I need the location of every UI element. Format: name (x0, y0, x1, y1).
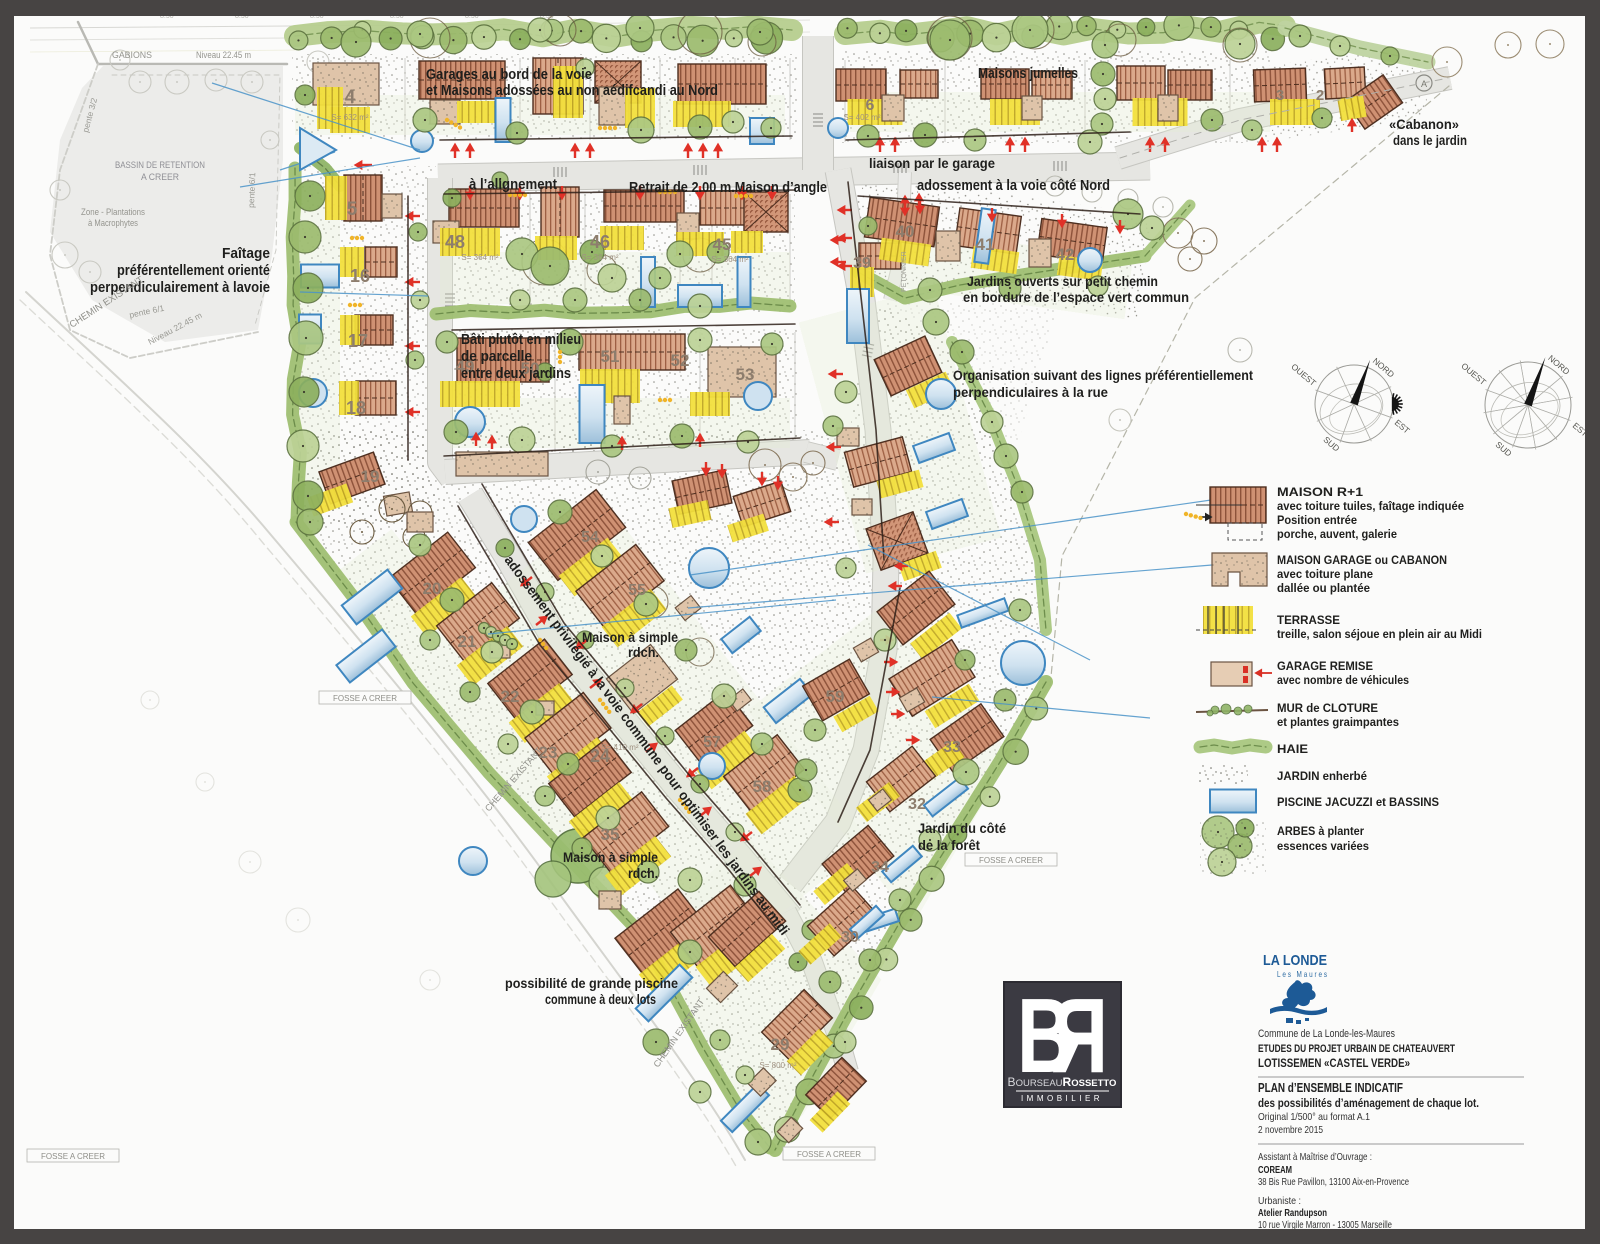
svg-text:adossement à la voie côté Nord: adossement à la voie côté Nord (917, 178, 1110, 194)
svg-text:S= 364 m²: S= 364 m² (711, 255, 748, 264)
svg-text:PETONNIER: PETONNIER (901, 251, 908, 292)
svg-text:dallée ou plantée: dallée ou plantée (1277, 581, 1370, 595)
svg-text:porche, auvent, galerie: porche, auvent, galerie (1277, 527, 1397, 541)
svg-text:MAISON R+1: MAISON R+1 (1277, 485, 1363, 499)
svg-text:et plantes graimpantes: et plantes graimpantes (1277, 715, 1399, 729)
svg-text:à l’alignement: à l’alignement (469, 177, 557, 193)
svg-text:de parcelle: de parcelle (461, 349, 532, 365)
svg-text:Maisons jumelles: Maisons jumelles (978, 66, 1078, 82)
svg-text:S= 800 m²: S= 800 m² (759, 1061, 796, 1070)
svg-text:Commune de La Londe-les-Maure: Commune de La Londe-les-Maures (1258, 1028, 1395, 1040)
svg-text:S= 364 m²: S= 364 m² (581, 253, 618, 262)
svg-text:6: 6 (866, 97, 875, 114)
svg-text:avec toiture tuiles, faîtage i: avec toiture tuiles, faîtage indiquée (1277, 499, 1464, 513)
svg-text:Atelier Randupson: Atelier Randupson (1258, 1207, 1327, 1219)
svg-text:liaison par le garage: liaison par le garage (869, 155, 995, 171)
svg-text:52: 52 (671, 351, 690, 370)
svg-text:COREAM: COREAM (1258, 1164, 1292, 1176)
svg-text:18: 18 (346, 398, 366, 418)
svg-text:Maison à simple: Maison à simple (582, 630, 678, 645)
svg-text:34: 34 (871, 859, 889, 876)
svg-text:21: 21 (458, 632, 477, 651)
svg-text:en bordure de l’espace vert co: en bordure de l’espace vert commun (963, 289, 1189, 305)
svg-text:A CREER: A CREER (141, 172, 179, 183)
svg-text:essences variées: essences variées (1277, 839, 1369, 853)
svg-text:Urbaniste :: Urbaniste : (1258, 1195, 1301, 1207)
svg-text:FOSSE A CREER: FOSSE A CREER (797, 1150, 861, 1159)
svg-text:Retrait de 2.00 m.Maison d’ang: Retrait de 2.00 m.Maison d’angle (629, 180, 827, 196)
svg-text:avec nombre de véhicules: avec nombre de véhicules (1277, 673, 1409, 687)
svg-text:rdch.: rdch. (628, 645, 659, 660)
svg-text:Niveau 22.45 m: Niveau 22.45 m (196, 50, 251, 60)
svg-text:53: 53 (736, 365, 755, 384)
svg-text:Original 1/500° au format A.1: Original 1/500° au format A.1 (1258, 1111, 1370, 1123)
svg-text:35: 35 (601, 825, 620, 844)
svg-text:19: 19 (361, 467, 380, 486)
svg-text:des possibilités d’aménagement: des possibilités d’aménagement de chaque… (1258, 1096, 1479, 1110)
svg-text:59: 59 (826, 687, 845, 706)
svg-text:5: 5 (347, 199, 358, 220)
svg-text:entre deux jardins: entre deux jardins (461, 366, 571, 382)
svg-text:S= 410 m²: S= 410 m² (601, 743, 638, 752)
svg-text:33: 33 (943, 739, 961, 756)
svg-text:treille, salon séjoue en plein: treille, salon séjoue en plein air au Mi… (1277, 627, 1482, 641)
svg-text:Jardins ouverts sur petit chem: Jardins ouverts sur petit chemin (967, 273, 1158, 289)
svg-text:41: 41 (976, 235, 995, 254)
svg-text:22: 22 (501, 687, 520, 706)
svg-text:45: 45 (713, 235, 732, 254)
svg-text:IMMOBILIER: IMMOBILIER (1021, 1094, 1103, 1103)
svg-text:54: 54 (581, 529, 599, 546)
svg-text:Les Maures: Les Maures (1277, 969, 1329, 979)
svg-text:rdch.: rdch. (628, 866, 658, 881)
svg-text:48: 48 (445, 232, 465, 252)
svg-text:Maison à simple: Maison à simple (563, 850, 658, 865)
svg-text:42: 42 (1056, 245, 1075, 264)
svg-text:GABIONS: GABIONS (112, 50, 152, 60)
svg-text:LA LONDE: LA LONDE (1263, 952, 1327, 969)
svg-text:commune à deux lots: commune à deux lots (545, 991, 656, 1007)
svg-text:39: 39 (853, 255, 871, 272)
svg-text:Zone - Plantations: Zone - Plantations (81, 207, 145, 217)
svg-text:Bâti plutôt en milieu: Bâti plutôt en milieu (461, 332, 581, 348)
svg-text:R: R (1051, 977, 1108, 1095)
svg-text:dans le jardin: dans le jardin (1393, 133, 1467, 148)
svg-text:46: 46 (590, 232, 610, 252)
svg-text:3: 3 (1276, 87, 1284, 104)
svg-text:2 novembre 2015: 2 novembre 2015 (1258, 1124, 1323, 1136)
svg-text:pente 6/1: pente 6/1 (246, 172, 257, 208)
svg-text:57: 57 (703, 734, 721, 751)
svg-text:ARBES à planter: ARBES à planter (1277, 824, 1364, 838)
svg-text:S= 402 m²: S= 402 m² (843, 113, 880, 122)
svg-text:Jardin du côté: Jardin du côté (918, 821, 1006, 836)
svg-text:«Cabanon»: «Cabanon» (1389, 117, 1459, 132)
svg-text:55: 55 (628, 582, 646, 599)
svg-text:Position entrée: Position entrée (1277, 513, 1357, 527)
svg-text:Assistant à Maîtrise d’Ouvrage: Assistant à Maîtrise d’Ouvrage : (1258, 1151, 1372, 1163)
svg-text:16: 16 (350, 266, 370, 286)
svg-text:GARAGE REMISE: GARAGE REMISE (1277, 659, 1373, 673)
svg-text:40: 40 (896, 222, 915, 241)
svg-text:20: 20 (423, 579, 442, 598)
svg-text:LOTISSEMEN «CASTEL VERDE»: LOTISSEMEN «CASTEL VERDE» (1258, 1056, 1410, 1070)
svg-text:de la forêt: de la forêt (918, 838, 980, 853)
svg-text:Garages au bord de la voie: Garages au bord de la voie (426, 67, 592, 83)
svg-text:perpendiculaires à la rue: perpendiculaires à la rue (953, 384, 1108, 400)
svg-text:4: 4 (345, 87, 356, 108)
svg-text:2: 2 (1316, 87, 1324, 104)
svg-text:32: 32 (908, 796, 926, 813)
svg-text:FOSSE A CREER: FOSSE A CREER (333, 694, 397, 703)
svg-text:MAISON GARAGE ou CABANON: MAISON GARAGE ou CABANON (1277, 553, 1447, 567)
svg-text:avec toiture plane: avec toiture plane (1277, 567, 1373, 581)
svg-text:38 Bis Rue Pavillon, 13100 Aix: 38 Bis Rue Pavillon, 13100 Aix-en-Proven… (1258, 1176, 1409, 1188)
svg-text:S= 364 m²: S= 364 m² (461, 253, 498, 262)
svg-text:Organisation suivant des ligne: Organisation suivant des lignes préféren… (953, 367, 1253, 383)
svg-text:17: 17 (348, 331, 368, 351)
svg-text:PISCINE JACUZZI et BASSINS: PISCINE JACUZZI et BASSINS (1277, 795, 1439, 809)
svg-text:BASSIN DE RETENTION: BASSIN DE RETENTION (115, 160, 205, 171)
svg-text:58: 58 (753, 777, 772, 796)
svg-text:MUR de CLOTURE: MUR de CLOTURE (1277, 701, 1378, 715)
svg-text:et Maisons adossées au non aéd: et Maisons adossées au non aédifcandi au… (426, 83, 718, 99)
svg-text:PLAN d’ENSEMBLE INDICATIF: PLAN d’ENSEMBLE INDICATIF (1258, 1080, 1403, 1095)
svg-text:ETUDES DU PROJET URBAIN DE CHA: ETUDES DU PROJET URBAIN DE CHATEAUVERT (1258, 1043, 1455, 1055)
svg-text:A: A (1421, 79, 1427, 89)
svg-text:BOURSEAUROSSETTO: BOURSEAUROSSETTO (1008, 1075, 1117, 1089)
svg-text:FOSSE A CREER: FOSSE A CREER (979, 856, 1043, 865)
svg-text:S= 632 m²: S= 632 m² (331, 113, 368, 122)
svg-text:51: 51 (601, 347, 620, 366)
svg-text:30: 30 (841, 929, 859, 946)
svg-text:à Macrophytes: à Macrophytes (88, 218, 138, 228)
svg-text:JARDIN enherbé: JARDIN enherbé (1277, 769, 1367, 783)
svg-text:HAIE: HAIE (1277, 742, 1308, 756)
svg-text:FOSSE A CREER: FOSSE A CREER (41, 1152, 105, 1161)
svg-text:TERRASSE: TERRASSE (1277, 613, 1340, 627)
svg-text:29: 29 (771, 1035, 790, 1054)
svg-text:Faîtage: Faîtage (222, 246, 270, 262)
svg-text:possibilité de grande piscine: possibilité de grande piscine (505, 975, 678, 991)
